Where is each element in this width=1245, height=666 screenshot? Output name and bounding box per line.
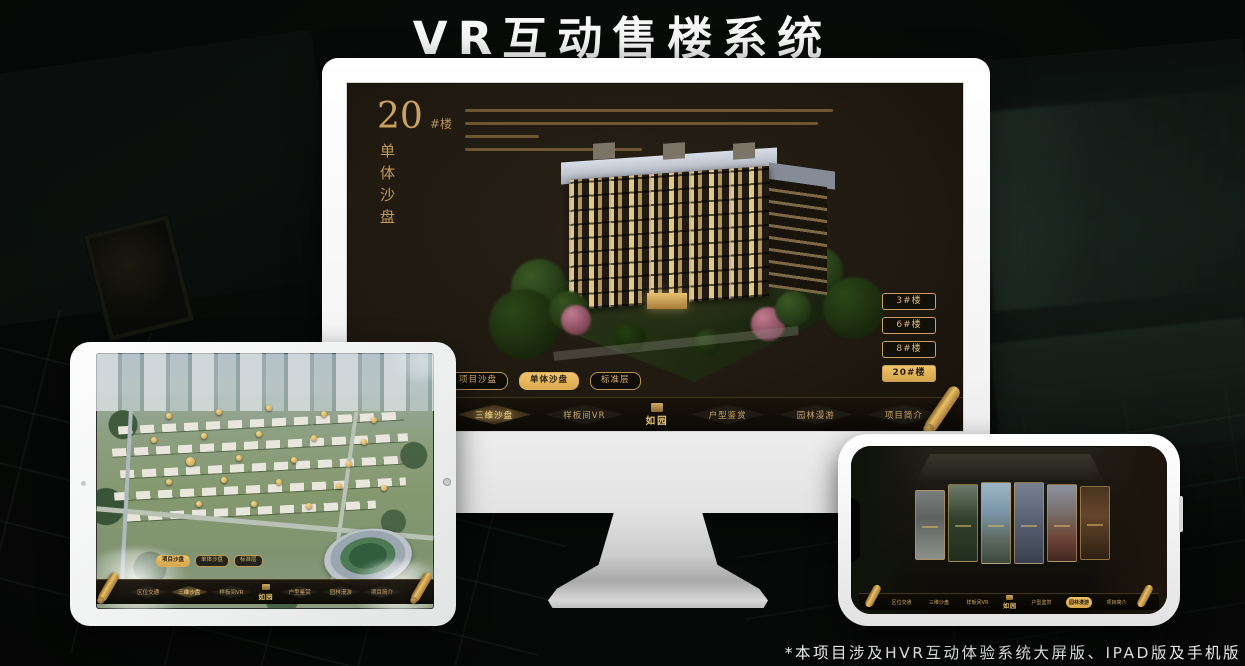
nav-item-project-intro[interactable]: 项目简介	[875, 405, 933, 425]
floor-button-3[interactable]: 3#楼	[882, 293, 936, 310]
logo-text: 如园	[646, 413, 669, 427]
tab-single-sandtable[interactable]: 单体沙盘	[519, 372, 579, 390]
building-marker[interactable]	[276, 479, 282, 485]
gallery-card[interactable]	[981, 482, 1011, 564]
description-line	[465, 109, 833, 112]
ipad-view-tabs: 项目沙盘 单体沙盘 标准层	[156, 555, 263, 567]
nav-item-project-intro[interactable]: 项目简介	[1103, 597, 1129, 608]
building-marker[interactable]	[251, 501, 257, 507]
logo-text: 如园	[259, 591, 274, 601]
tree	[775, 291, 811, 327]
roof-dormer	[663, 142, 685, 160]
building-marker[interactable]	[346, 461, 352, 467]
nav-item-showroom-vr[interactable]: 样板间VR	[215, 586, 247, 598]
building-marker[interactable]	[166, 479, 172, 485]
building-heading: 20 #楼 单体沙盘	[377, 99, 452, 231]
ipad-screen: 项目沙盘 单体沙盘 标准层 区位交通 三维沙盘 样板间VR 如园 户型鉴赏 园林…	[96, 353, 434, 609]
gallery-card[interactable]	[948, 484, 978, 562]
marketing-poster: VR互动售楼系统 20 #楼 单体沙盘	[0, 0, 1245, 666]
building-model[interactable]	[497, 143, 877, 399]
description-line	[465, 135, 539, 138]
building-marker[interactable]	[151, 437, 157, 443]
building-marker[interactable]	[371, 417, 377, 423]
ipad-navbar: 区位交通 三维沙盘 样板间VR 如园 户型鉴赏 园林漫游 项目简介	[96, 579, 434, 604]
building-marker[interactable]	[221, 477, 227, 483]
nav-item-garden-tour[interactable]: 园林漫游	[787, 405, 845, 425]
ipad-tab-project-sandtable[interactable]: 项目沙盘	[156, 555, 190, 567]
gallery-card[interactable]	[1014, 482, 1044, 564]
phone-screen: 区位交通 三维沙盘 样板间VR 如园 户型鉴赏 园林漫游 项目简介	[851, 446, 1167, 614]
building-marker[interactable]	[266, 405, 272, 411]
nav-item-showroom-vr[interactable]: 样板间VR	[964, 597, 992, 608]
brand-logo[interactable]: 如园	[646, 403, 669, 427]
nav-item-sandtable[interactable]: 三维沙盘	[465, 405, 523, 425]
blossom-tree	[561, 305, 591, 335]
nav-item-location[interactable]: 区位交通	[889, 597, 915, 608]
logo-seal-icon	[651, 403, 663, 412]
nav-item-floorplans[interactable]: 户型鉴赏	[699, 405, 757, 425]
roof-dormer	[593, 142, 615, 160]
floor-selector: 3#楼 6#楼 8#楼 20#楼	[882, 293, 936, 382]
phone-navbar: 区位交通 三维沙盘 样板间VR 如园 户型鉴赏 园林漫游 项目简介	[859, 593, 1159, 610]
ipad-tab-single-sandtable[interactable]: 单体沙盘	[195, 555, 229, 567]
building-marker[interactable]	[186, 457, 195, 466]
description-line	[465, 122, 818, 125]
nav-item-garden-tour[interactable]: 园林漫游	[326, 586, 356, 598]
tab-project-sandtable[interactable]: 项目沙盘	[448, 372, 508, 390]
brand-logo[interactable]: 如园	[259, 584, 274, 601]
gate-beam	[917, 454, 1103, 480]
nav-item-location[interactable]: 区位交通	[133, 586, 163, 598]
ipad-tab-standard-floor[interactable]: 标准层	[234, 555, 263, 567]
nav-item-sandtable[interactable]: 三维沙盘	[926, 597, 952, 608]
nav-item-floorplans[interactable]: 户型鉴赏	[285, 586, 315, 598]
floor-button-6[interactable]: 6#楼	[882, 317, 936, 334]
nav-item-floorplans[interactable]: 户型鉴赏	[1028, 597, 1054, 608]
building-marker[interactable]	[196, 501, 202, 507]
building-number: 20	[377, 96, 423, 137]
phone-notch	[851, 498, 860, 562]
logo-seal-icon	[1006, 595, 1013, 600]
tree	[823, 277, 885, 339]
phone-side-button[interactable]	[1179, 496, 1183, 532]
footnote: *本项目涉及HVR互动体验系统大屏版、IPAD版及手机版	[785, 641, 1241, 663]
roof-dormer	[733, 142, 755, 160]
building-marker[interactable]	[311, 435, 317, 441]
building-marker[interactable]	[381, 485, 387, 491]
brand-logo[interactable]: 如园	[1003, 595, 1017, 610]
building-marker[interactable]	[291, 457, 297, 463]
gallery-card[interactable]	[1080, 486, 1110, 560]
tab-standard-floor[interactable]: 标准层	[590, 372, 641, 390]
building-marker[interactable]	[166, 413, 172, 419]
gallery-card[interactable]	[1047, 484, 1077, 562]
building-side-facade	[769, 179, 827, 295]
floor-button-20[interactable]: 20#楼	[882, 365, 936, 382]
building-marker[interactable]	[201, 433, 207, 439]
building-marker[interactable]	[216, 409, 222, 415]
nav-item-project-intro[interactable]: 项目简介	[367, 586, 397, 598]
ipad-home-button[interactable]	[443, 478, 451, 486]
logo-seal-icon	[262, 584, 270, 590]
nav-item-showroom-vr[interactable]: 样板间VR	[553, 405, 615, 425]
building-facade	[569, 166, 769, 310]
gallery-card[interactable]	[915, 490, 945, 560]
building-entrance	[647, 293, 687, 309]
tree	[489, 289, 559, 359]
building-marker[interactable]	[306, 503, 312, 509]
building-marker[interactable]	[321, 411, 327, 417]
building-subtitle: 单体沙盘	[377, 143, 398, 231]
building-marker[interactable]	[361, 439, 367, 445]
building-number-unit: #楼	[430, 117, 452, 131]
logo-text: 如园	[1003, 601, 1017, 610]
building-marker[interactable]	[336, 483, 342, 489]
building-marker[interactable]	[256, 431, 262, 437]
view-tabs: 项目沙盘 单体沙盘 标准层	[448, 372, 641, 390]
floor-button-8[interactable]: 8#楼	[882, 341, 936, 358]
nav-item-garden-tour[interactable]: 园林漫游	[1066, 597, 1092, 608]
background-aerial-photo	[977, 88, 1245, 311]
building-marker[interactable]	[236, 455, 242, 461]
nav-item-sandtable[interactable]: 三维沙盘	[174, 586, 204, 598]
ipad-camera-icon	[81, 481, 86, 486]
